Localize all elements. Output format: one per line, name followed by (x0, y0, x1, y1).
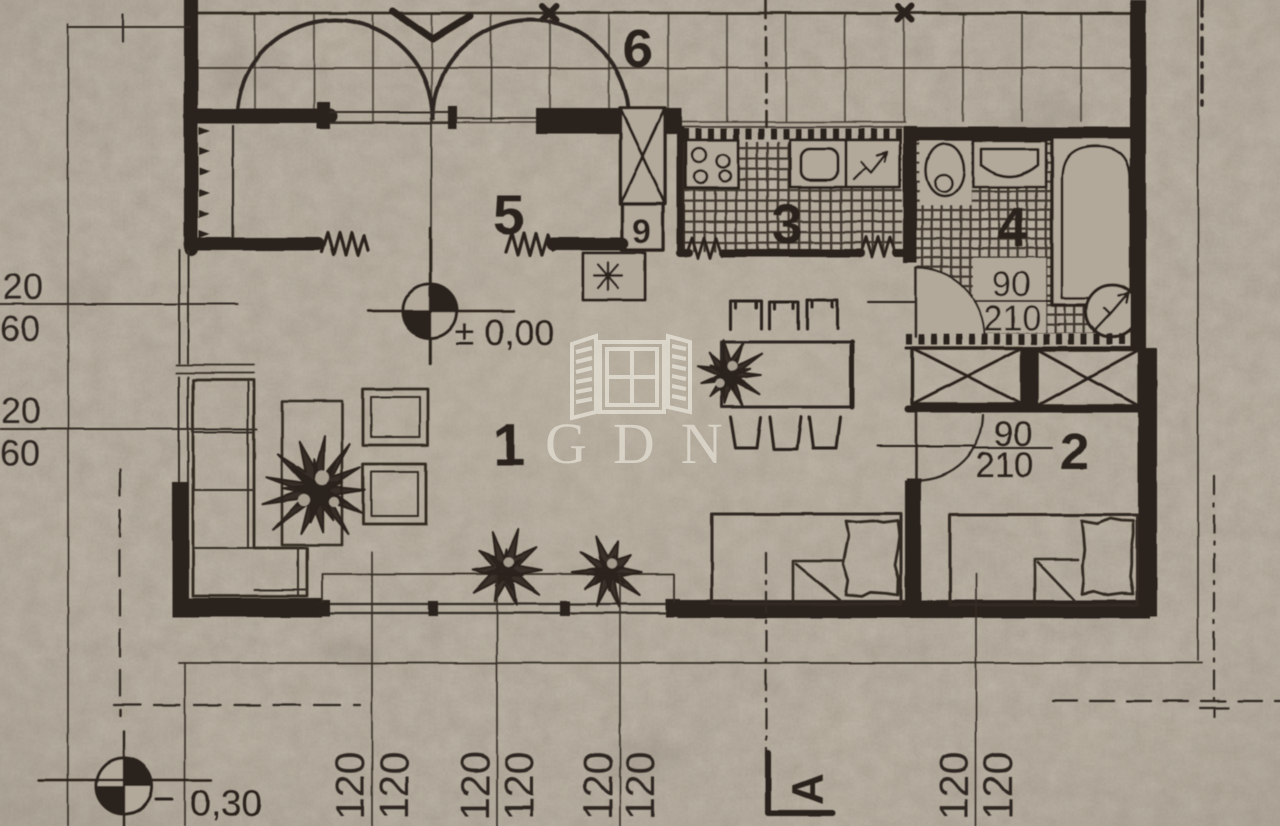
svg-text:5: 5 (493, 183, 524, 246)
svg-text:9: 9 (632, 213, 651, 251)
svg-text:210: 210 (983, 299, 1041, 338)
svg-text:120: 120 (931, 752, 977, 820)
svg-text:120: 120 (975, 752, 1021, 820)
svg-text:210: 210 (975, 446, 1033, 485)
svg-text:120: 120 (575, 752, 621, 820)
svg-text:0,30: 0,30 (190, 783, 262, 824)
svg-text:2: 2 (1060, 423, 1089, 481)
svg-text:3: 3 (772, 193, 803, 255)
svg-text:120: 120 (617, 752, 663, 820)
svg-text:120: 120 (496, 752, 542, 820)
svg-text:6: 6 (623, 19, 653, 79)
svg-text:60: 60 (0, 432, 40, 473)
svg-text:GDN: GDN (545, 411, 749, 476)
svg-text:60: 60 (0, 308, 40, 349)
svg-text:120: 120 (327, 752, 373, 820)
svg-text:120: 120 (452, 752, 498, 820)
svg-text:4: 4 (997, 196, 1028, 258)
svg-text:20: 20 (1, 390, 41, 431)
svg-text:20: 20 (3, 266, 43, 307)
svg-text:A: A (783, 773, 832, 805)
svg-text:± 0,00: ± 0,00 (455, 312, 555, 353)
svg-text:120: 120 (371, 752, 417, 820)
svg-text:1: 1 (493, 413, 525, 478)
